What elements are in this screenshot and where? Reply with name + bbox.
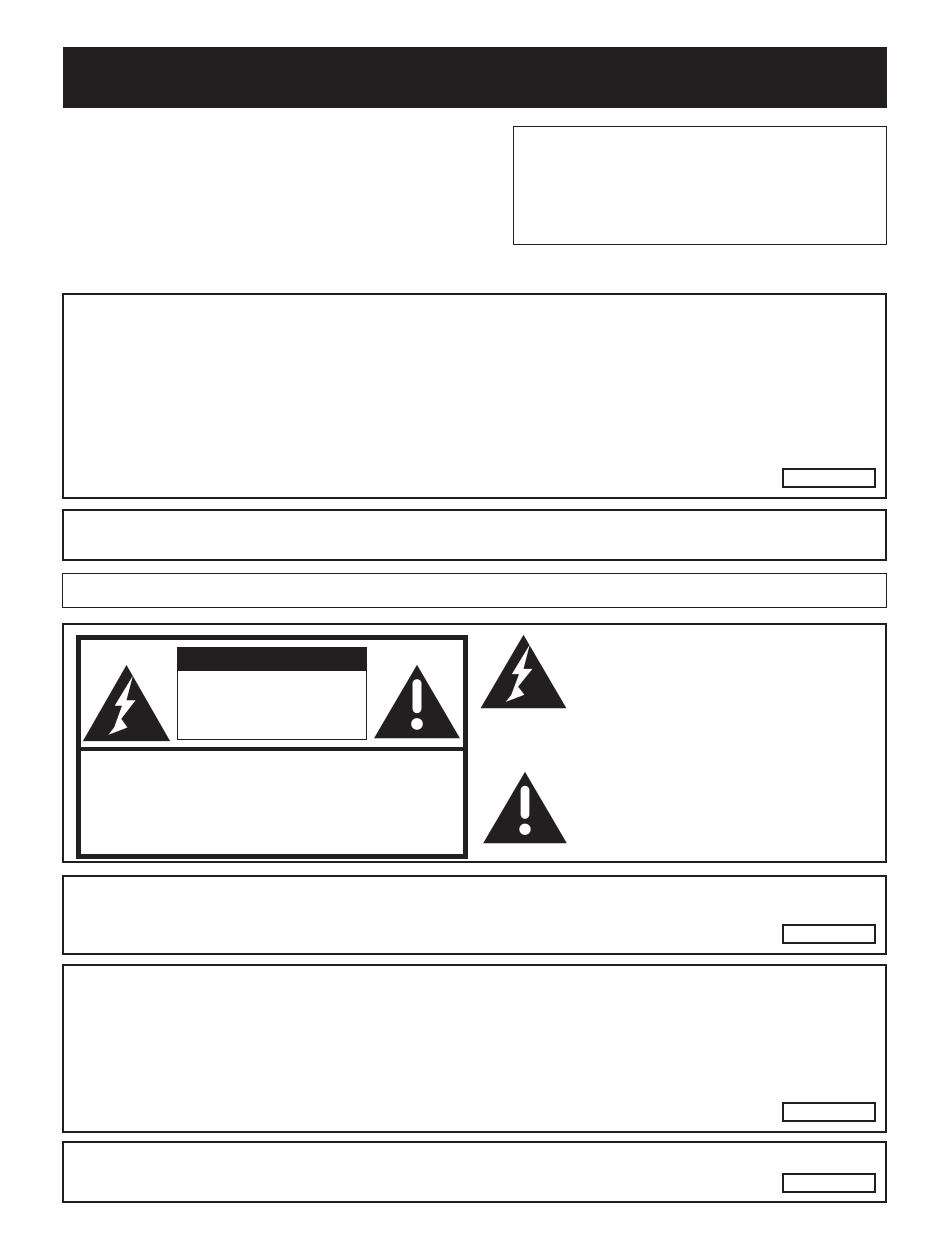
manual-safety-page	[0, 0, 950, 1248]
alert-symbol-description	[580, 775, 875, 855]
caution-text-box	[177, 670, 367, 740]
warning-box	[62, 293, 887, 499]
caution-label-lower-text	[87, 755, 457, 850]
shock-symbol-description	[580, 635, 875, 755]
high-voltage-icon	[478, 633, 569, 710]
alert-icon	[480, 770, 570, 845]
page-title-bar	[63, 47, 887, 108]
notice-box-2	[62, 573, 887, 608]
alert-icon	[372, 663, 462, 740]
notice-box-1	[62, 509, 887, 561]
caution-panel	[62, 623, 887, 863]
label-chip	[782, 924, 876, 944]
caution-title-bar	[177, 647, 367, 670]
info-box-1	[62, 875, 887, 955]
caution-label	[76, 635, 468, 859]
info-box-3	[62, 1141, 887, 1203]
info-box-2	[62, 964, 887, 1133]
label-chip	[782, 1173, 876, 1193]
note-box	[513, 126, 887, 245]
high-voltage-icon	[81, 663, 172, 743]
caution-label-divider	[81, 747, 463, 751]
label-chip	[782, 468, 876, 488]
label-chip	[782, 1102, 876, 1122]
